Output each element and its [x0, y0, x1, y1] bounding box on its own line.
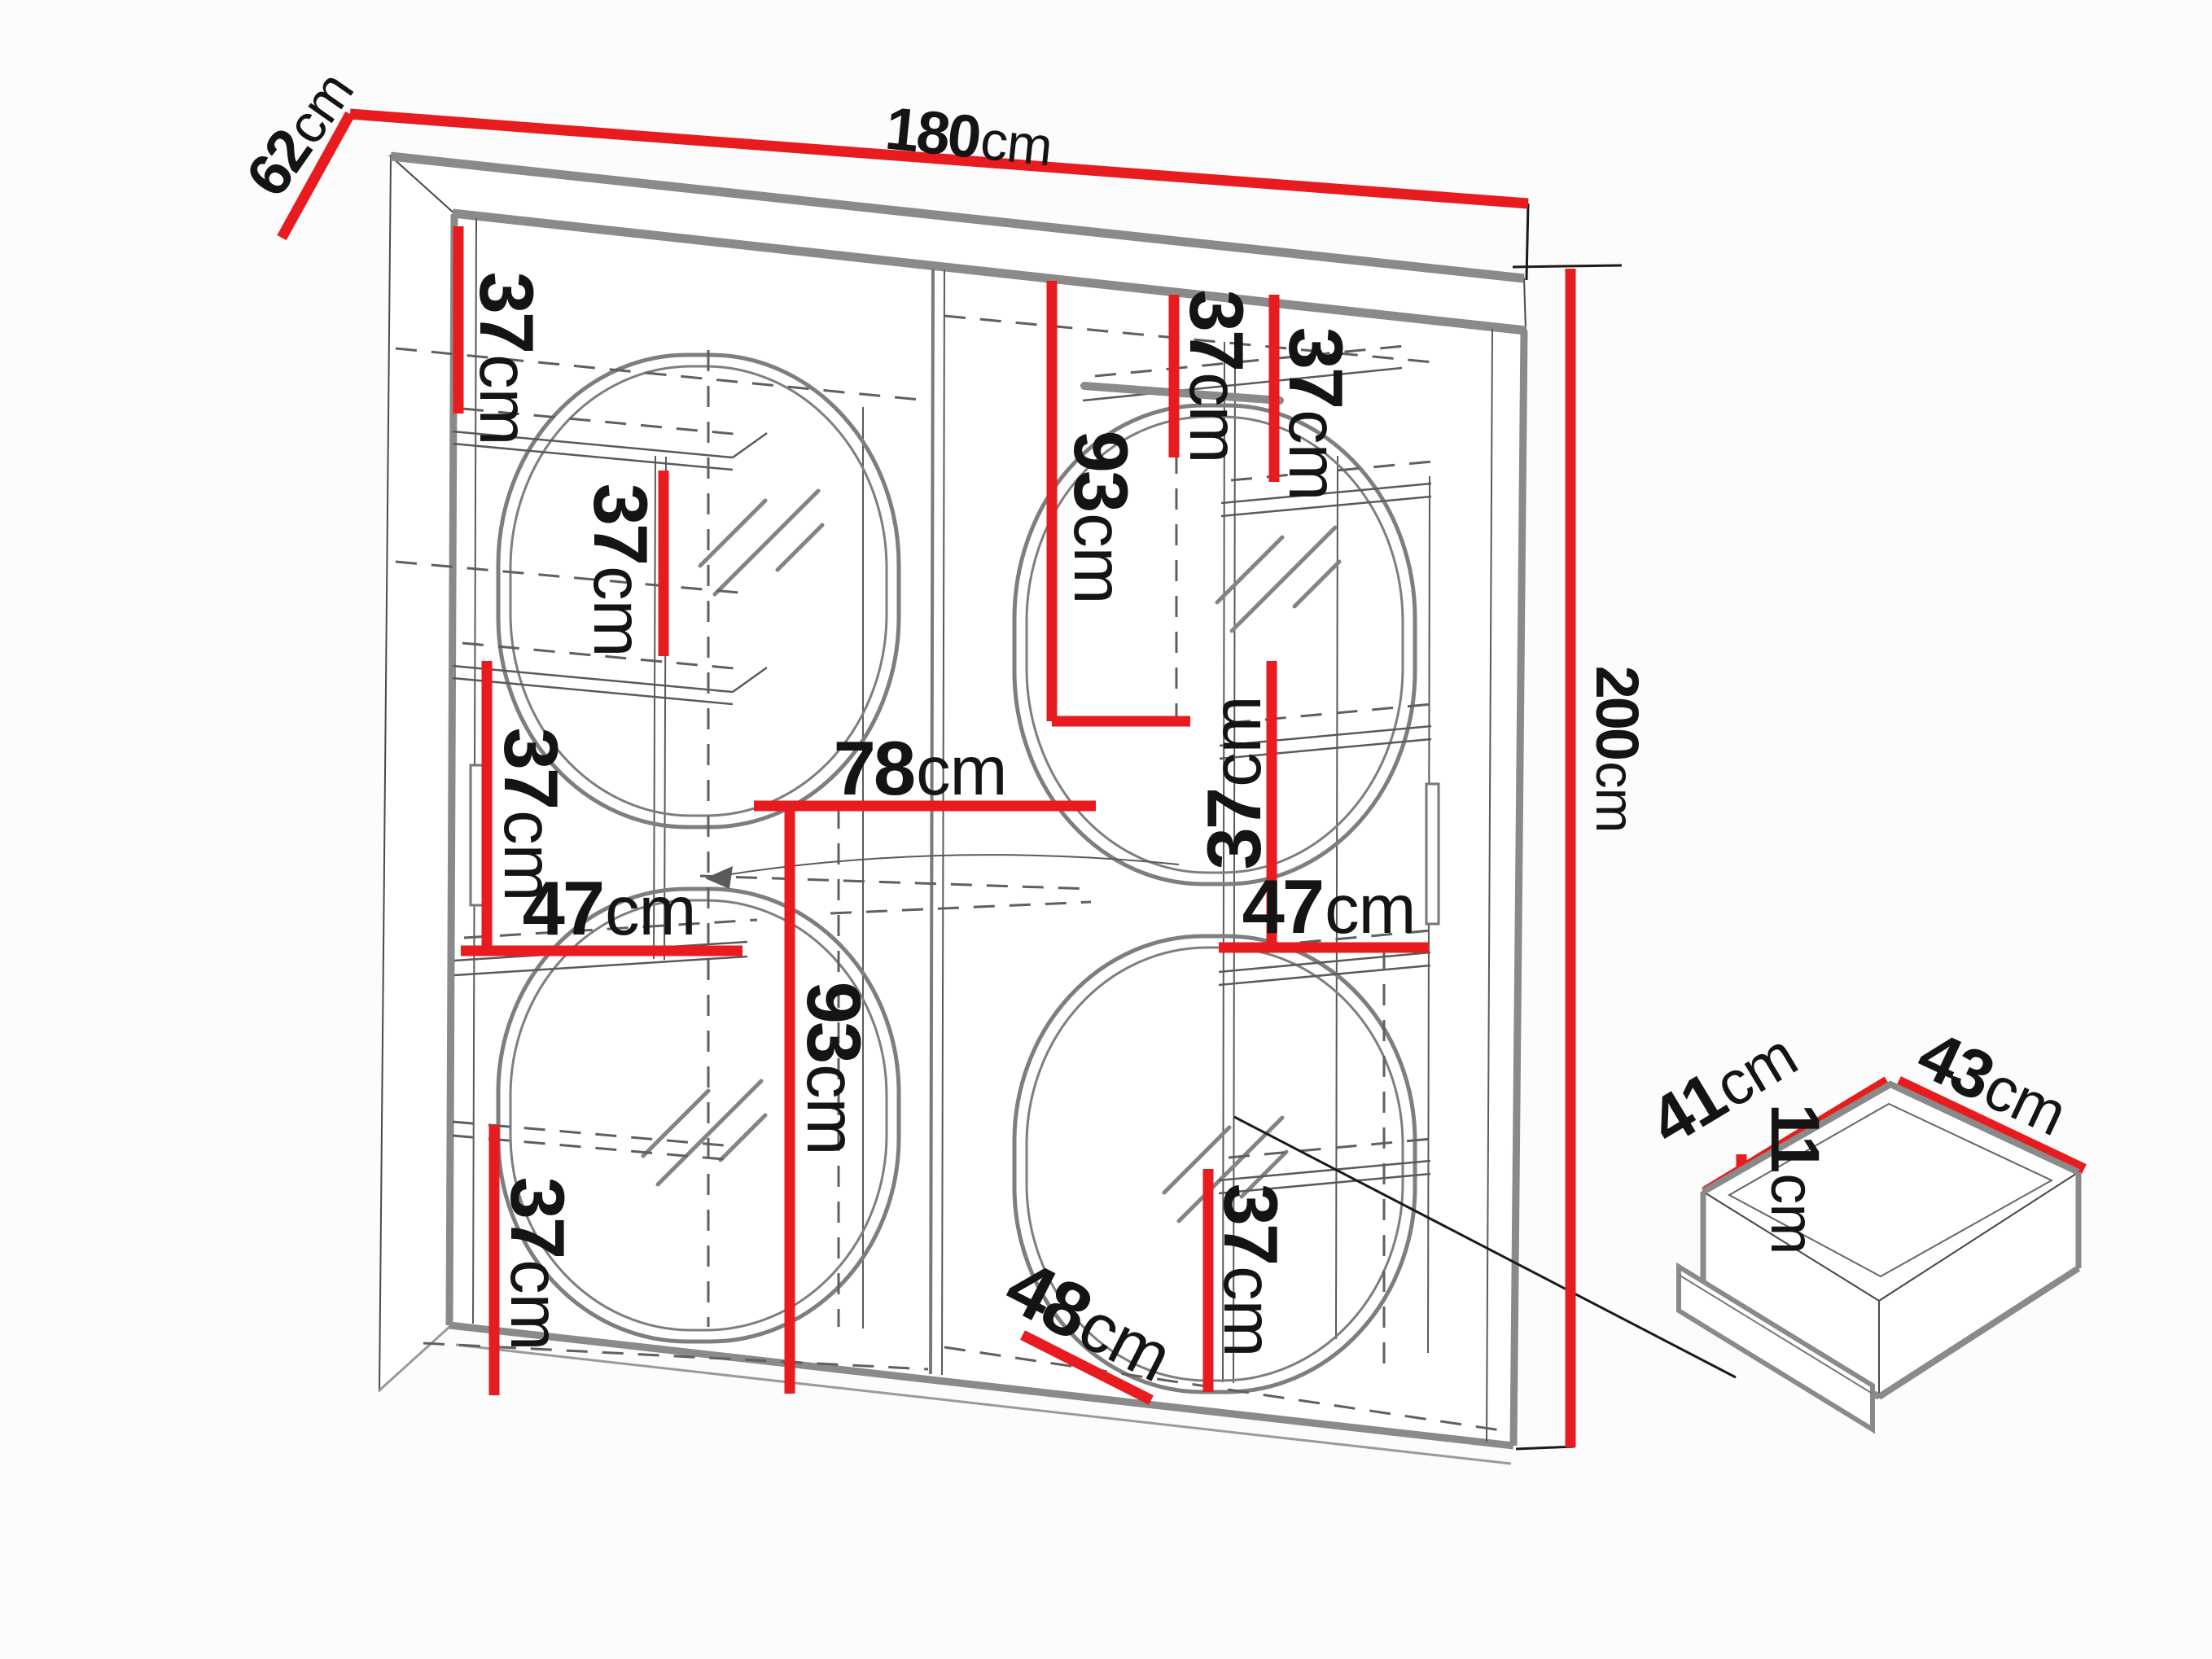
dim-label-11-drawer-height: 11cm [1761, 1103, 1829, 1254]
dim-label-47-left: 47cm [523, 870, 696, 947]
dim-label-37-top-right-a: 37cm [1178, 290, 1255, 463]
dim-label-37-bottom-left: 37cm [499, 1177, 576, 1350]
extension-width [1526, 204, 1528, 280]
left-door-handle [471, 765, 483, 905]
wardrobe-left-side [379, 156, 456, 1390]
dim-label-37-left-inner: 37cm [582, 484, 659, 657]
dim-label-93-lower-left: 93cm [795, 982, 872, 1155]
dim-label-78-half-width: 78cm [834, 730, 1007, 807]
diagram-canvas: 62cm 180cm 200cm 37cm 37cm 37cm 47cm 78c… [0, 0, 2212, 1659]
dim-label-37-top-right-b: 37cm [1277, 327, 1354, 501]
wardrobe-diagram-linework [0, 0, 2212, 1659]
wardrobe-front-face [449, 215, 1526, 1446]
dim-label-200-height: 200cm [1587, 666, 1647, 833]
dim-label-37-right-mid: 37cm [1196, 697, 1272, 870]
dim-label-93-right: 93cm [1062, 431, 1139, 604]
right-door-handle [1426, 784, 1439, 924]
dim-label-37-bottom-right: 37cm [1212, 1184, 1289, 1357]
extension-height-top [1513, 265, 1622, 267]
dim-label-47-right: 47cm [1242, 869, 1416, 945]
dim-label-37-top-left: 37cm [468, 272, 545, 445]
